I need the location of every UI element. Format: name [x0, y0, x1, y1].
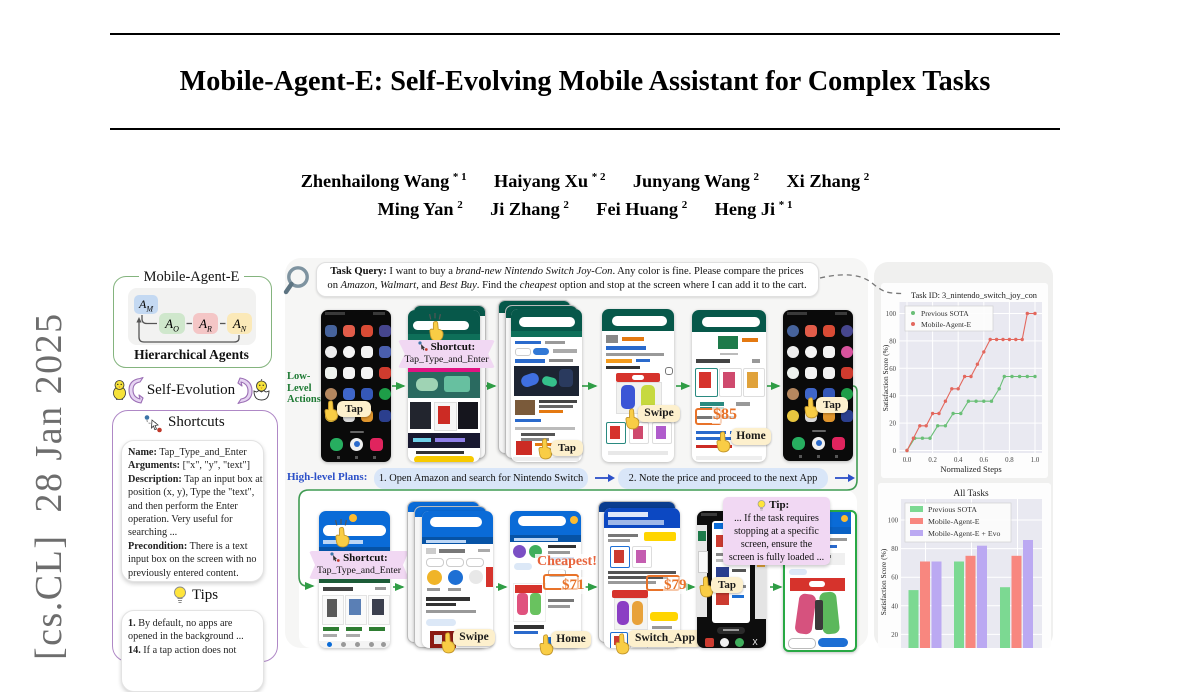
svg-text:All Tasks: All Tasks [953, 489, 989, 499]
svg-text:0.2: 0.2 [928, 457, 937, 464]
svg-text:Satisfaction Score (%): Satisfaction Score (%) [879, 548, 888, 615]
svg-text:Normalized Steps: Normalized Steps [940, 464, 1002, 474]
svg-text:Satisfaction Score (%): Satisfaction Score (%) [881, 344, 890, 411]
svg-text:100: 100 [888, 518, 899, 525]
svg-text:1.0: 1.0 [1031, 457, 1040, 464]
svg-text:Previous SOTA: Previous SOTA [928, 505, 977, 514]
svg-text:20: 20 [889, 421, 896, 428]
svg-text:40: 40 [891, 603, 898, 610]
svg-text:0.6: 0.6 [980, 457, 989, 464]
svg-text:80: 80 [889, 338, 896, 345]
svg-text:Mobile-Agent-E: Mobile-Agent-E [921, 320, 972, 329]
svg-text:80: 80 [891, 546, 898, 553]
svg-text:40: 40 [889, 393, 896, 400]
svg-text:60: 60 [889, 366, 896, 373]
svg-text:20: 20 [891, 632, 898, 639]
svg-text:Task ID: 3_nintendo_switch_joy: Task ID: 3_nintendo_switch_joy_con [911, 291, 1038, 300]
svg-text:0.8: 0.8 [1005, 457, 1014, 464]
svg-text:0.4: 0.4 [954, 457, 963, 464]
svg-text:60: 60 [891, 575, 898, 582]
svg-text:0: 0 [893, 448, 897, 455]
svg-text:Mobile-Agent-E: Mobile-Agent-E [928, 517, 980, 526]
svg-text:Mobile-Agent-E + Evo: Mobile-Agent-E + Evo [928, 529, 1000, 538]
svg-text:0.0: 0.0 [903, 457, 912, 464]
svg-text:Previous SOTA: Previous SOTA [921, 309, 969, 318]
svg-text:100: 100 [886, 311, 897, 318]
